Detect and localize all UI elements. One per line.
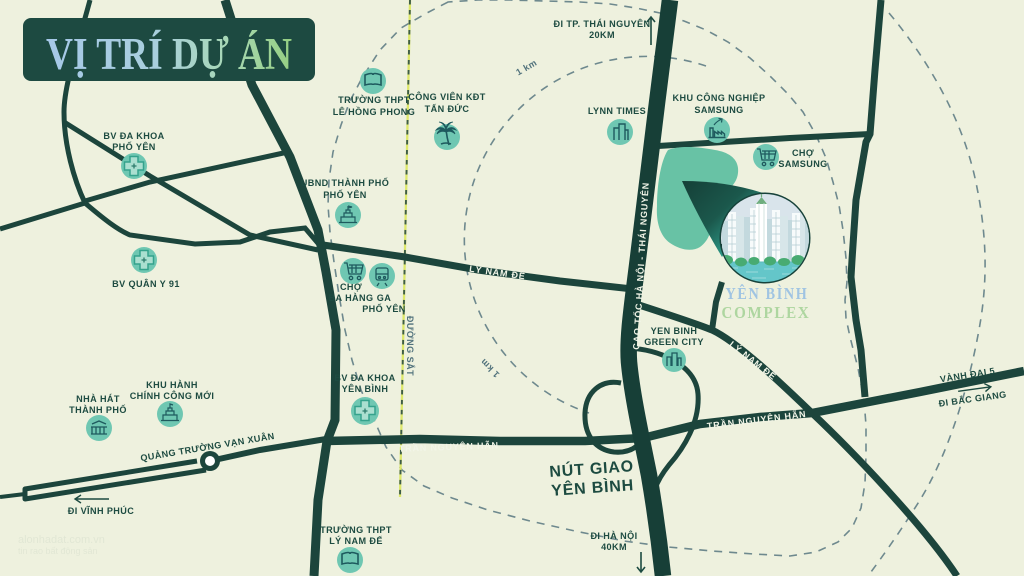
svg-text:BV ĐA KHOA: BV ĐA KHOA <box>334 373 395 383</box>
svg-text:PHỐ YÊN: PHỐ YÊN <box>112 141 156 152</box>
svg-text:VỊ TRÍ DỰ ÁN: VỊ TRÍ DỰ ÁN <box>46 29 292 79</box>
svg-text:NHÀ HÁT: NHÀ HÁT <box>76 394 120 404</box>
svg-text:YÊN BÌNH: YÊN BÌNH <box>342 383 389 394</box>
svg-text:20KM: 20KM <box>589 30 615 40</box>
svg-text:TRƯỜNG THPT: TRƯỜNG THPT <box>320 524 392 535</box>
svg-text:THÀNH PHỐ: THÀNH PHỐ <box>69 404 127 415</box>
svg-text:KHU HÀNH: KHU HÀNH <box>146 380 198 390</box>
svg-text:BV ĐA KHOA: BV ĐA KHOA <box>103 131 164 141</box>
svg-text:CÔNG VIÊN KĐT: CÔNG VIÊN KĐT <box>408 91 485 102</box>
svg-text:YÊN BÌNH: YÊN BÌNH <box>726 284 809 303</box>
svg-text:KHU CÔNG NGHIỆP: KHU CÔNG NGHIỆP <box>673 92 766 103</box>
svg-text:ĐƯỜNG SẮT: ĐƯỜNG SẮT <box>405 316 416 376</box>
svg-text:LÝ NAM ĐẾ: LÝ NAM ĐẾ <box>329 535 383 546</box>
svg-text:tin rao bất động sản: tin rao bất động sản <box>18 546 98 556</box>
svg-text:CHÍNH CÔNG MỚI: CHÍNH CÔNG MỚI <box>130 390 215 401</box>
svg-text:LÊ HỒNG PHONG: LÊ HỒNG PHONG <box>333 106 416 117</box>
svg-text:alonhadat.com.vn: alonhadat.com.vn <box>18 534 105 546</box>
svg-text:PHỐ YÊN: PHỐ YÊN <box>362 303 406 314</box>
svg-text:LYNN TIMES: LYNN TIMES <box>588 106 646 116</box>
svg-text:SAMSUNG: SAMSUNG <box>694 105 743 115</box>
svg-text:BA HÀNG: BA HÀNG <box>329 293 374 303</box>
svg-text:40KM: 40KM <box>601 542 627 552</box>
svg-text:GA: GA <box>377 293 391 303</box>
svg-text:UBND THÀNH PHỐ: UBND THÀNH PHỐ <box>301 177 389 188</box>
svg-text:ĐI VĨNH PHÚC: ĐI VĨNH PHÚC <box>68 505 134 516</box>
svg-text:YEN BINH: YEN BINH <box>651 326 698 336</box>
svg-text:PHỐ YÊN: PHỐ YÊN <box>323 189 367 200</box>
svg-text:SAMSUNG: SAMSUNG <box>778 159 827 169</box>
svg-text:ĐI TP. THÁI NGUYÊN: ĐI TP. THÁI NGUYÊN <box>554 18 651 29</box>
svg-text:ĐI HÀ NỘI: ĐI HÀ NỘI <box>590 530 637 541</box>
svg-text:GREEN CITY: GREEN CITY <box>644 337 704 347</box>
svg-text:BV QUÂN Y 91: BV QUÂN Y 91 <box>112 278 180 289</box>
svg-text:TẤN ĐỨC: TẤN ĐỨC <box>425 103 470 114</box>
svg-text:TRƯỜNG THPT: TRƯỜNG THPT <box>338 94 410 105</box>
svg-text:CHỢ: CHỢ <box>792 148 814 158</box>
svg-text:COMPLEX: COMPLEX <box>722 303 811 322</box>
